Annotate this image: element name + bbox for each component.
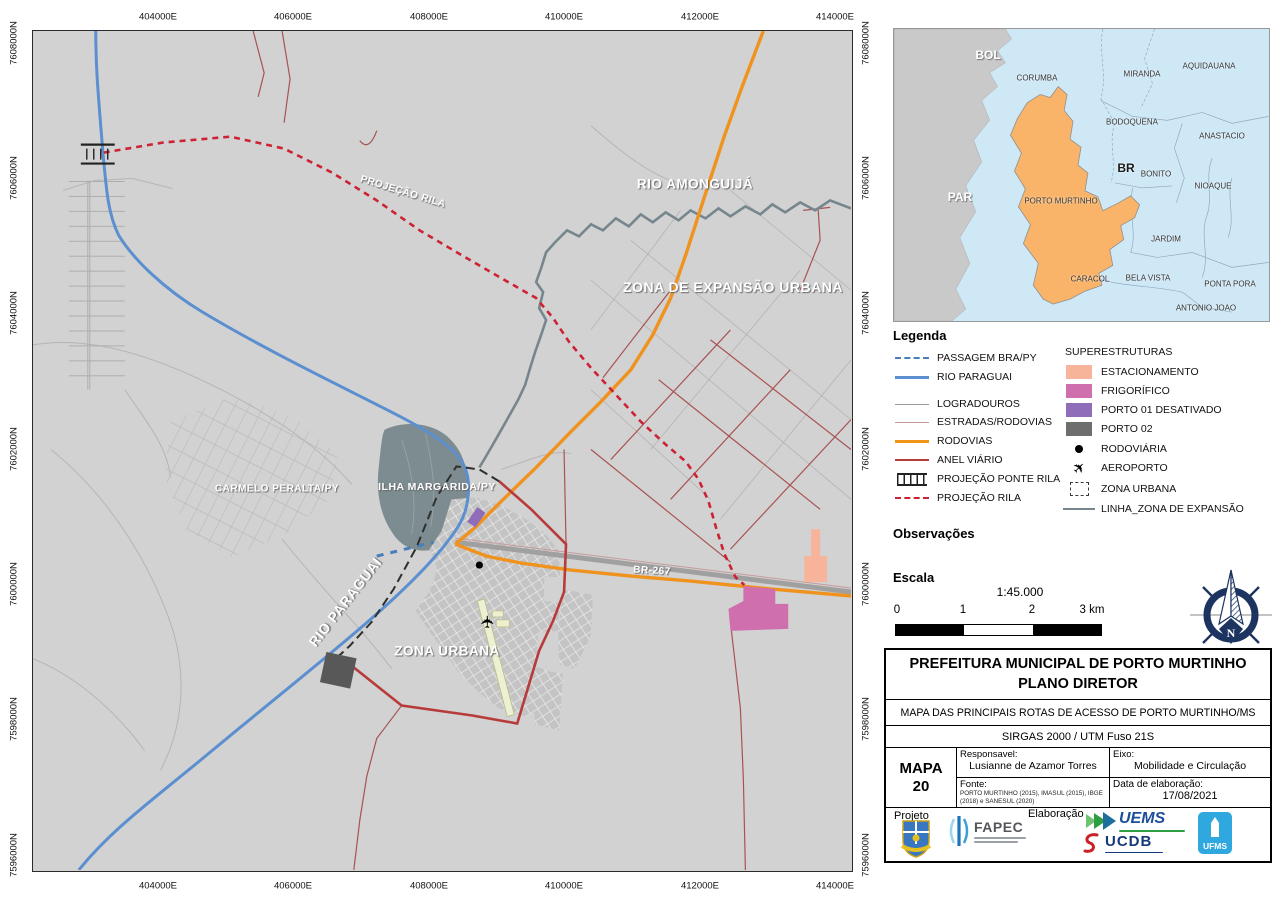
- legend-item-label: ESTRADAS/RODOVIAS: [937, 416, 1052, 428]
- inset-label: BONITO: [1141, 170, 1172, 179]
- line-symbol: [893, 440, 931, 443]
- dashed-line-symbol: [893, 357, 931, 359]
- scale-title: Escala: [893, 570, 934, 585]
- swatch-symbol: [1063, 365, 1095, 379]
- map-canvas: ✈: [33, 31, 851, 870]
- legend-item-label: ESTACIONAMENTO: [1101, 366, 1199, 378]
- legend-item: PASSAGEM BRA/PY: [893, 350, 1068, 366]
- axis-easting-bottom: 408000E: [410, 881, 448, 892]
- legend-item: ANEL VIÁRIO: [893, 452, 1068, 468]
- title-block: PREFEITURA MUNICIPAL DE PORTO MURTINHO P…: [884, 648, 1272, 863]
- line-symbol: [893, 422, 931, 423]
- inset-label: MIRANDA: [1124, 70, 1161, 79]
- uems-logo: UEMS: [1086, 810, 1185, 832]
- legend-item-label: RODOVIAS: [937, 435, 992, 447]
- legend-item-label: PORTO 01 DESATIVADO: [1101, 404, 1222, 416]
- compass-n-letter: N: [1227, 626, 1236, 640]
- legend-item: RODOVIAS: [893, 433, 1068, 449]
- legend-item-label: ANEL VIÁRIO: [937, 454, 1003, 466]
- legend-item-label: AEROPORTO: [1101, 462, 1168, 474]
- inset-label: PORTO MURTINHO: [1024, 197, 1097, 206]
- axis-northing-right: 7596000N: [861, 833, 872, 877]
- map-label: ZONA URBANA: [394, 644, 500, 659]
- axis-easting-bottom: 404000E: [139, 881, 177, 892]
- axis-easting-bottom: 410000E: [545, 881, 583, 892]
- plane-symbol: ✈: [1063, 459, 1095, 477]
- observacoes-title: Observações: [893, 526, 975, 541]
- map-subtitle: MAPA DAS PRINCIPAIS ROTAS DE ACESSO DE P…: [886, 700, 1270, 726]
- legend-item: LOGRADOUROS: [893, 396, 1068, 412]
- axis-northing-left: 7604000N: [9, 291, 20, 335]
- inset-label: BELA VISTA: [1126, 274, 1171, 283]
- inset-label: ANTONIO JOAO: [1176, 304, 1236, 313]
- map-label: CARMELO PERALTA/PY: [215, 484, 339, 495]
- axis-northing-left: 7600000N: [9, 562, 20, 606]
- title-line1: PREFEITURA MUNICIPAL DE PORTO MURTINHO: [886, 655, 1270, 675]
- legend-item: ESTRADAS/RODOVIAS: [893, 414, 1068, 430]
- legend-item: LINHA_ZONA DE EXPANSÃO: [1063, 501, 1273, 517]
- inset-label: JARDIM: [1151, 235, 1181, 244]
- legend-item: ✈AEROPORTO: [1063, 460, 1273, 476]
- responsavel-cell: Responsavel: Lusianne de Azamor Torres: [957, 748, 1109, 778]
- dashed-rect-symbol: [1063, 482, 1095, 496]
- axis-northing-right: 7600000N: [861, 562, 872, 606]
- axis-northing-left: 7598000N: [9, 697, 20, 741]
- axis-easting-top: 412000E: [681, 12, 719, 23]
- dot-symbol: [1063, 445, 1095, 453]
- porto-02: [320, 652, 357, 689]
- legend-item-label: PORTO 02: [1101, 423, 1153, 435]
- scale-tick-label: 2: [1029, 604, 1035, 616]
- legend-superestruturas-title: SUPERESTRUTURAS: [1065, 346, 1172, 358]
- axis-northing-right: 7602000N: [861, 427, 872, 471]
- legend-item-label: RIO PARAGUAI: [937, 371, 1012, 383]
- map-label: RIO AMONGUIJÁ: [637, 177, 753, 192]
- data-cell: Data de elaboração: 17/08/2021: [1110, 778, 1270, 807]
- axis-easting-top: 410000E: [545, 12, 583, 23]
- legend-item: PROJEÇÃO RILA: [893, 490, 1068, 506]
- main-map: ✈: [32, 30, 853, 872]
- swatch-symbol: [1063, 384, 1095, 398]
- axis-easting-bottom: 414000E: [816, 881, 854, 892]
- line-symbol: [893, 404, 931, 405]
- ucdb-icon: [1082, 832, 1102, 854]
- prefeitura-crest: [900, 818, 932, 863]
- legend-item: ZONA URBANA: [1063, 481, 1273, 497]
- ucdb-logo: UCDB: [1082, 832, 1163, 854]
- inset-label: BR: [1117, 161, 1134, 175]
- logos-row: Projeto FAPEC: [886, 808, 1270, 860]
- legend-title: Legenda: [893, 328, 946, 343]
- axis-northing-right: 7606000N: [861, 156, 872, 200]
- legend-item-label: ZONA URBANA: [1101, 483, 1176, 495]
- inset-label: CARACOL: [1071, 275, 1110, 284]
- axis-easting-top: 404000E: [139, 12, 177, 23]
- axis-easting-bottom: 406000E: [274, 881, 312, 892]
- uems-icon: [1086, 812, 1116, 830]
- fapec-icon: [948, 816, 970, 846]
- legend-item: ESTACIONAMENTO: [1063, 364, 1273, 380]
- axis-easting-bottom: 412000E: [681, 881, 719, 892]
- inset-label: PONTA PORA: [1204, 280, 1255, 289]
- swatch-symbol: [1063, 403, 1095, 417]
- line-symbol: [893, 376, 931, 379]
- legend-item: RODOVIÁRIA: [1063, 441, 1273, 457]
- legend-item-label: PROJEÇÃO RILA: [937, 492, 1021, 504]
- scale-tick-label: 3 km: [1080, 604, 1105, 616]
- map-sheet: ✈ Legenda: [0, 0, 1280, 905]
- title-line2: PLANO DIRETOR: [886, 675, 1270, 695]
- axis-easting-top: 406000E: [274, 12, 312, 23]
- city-blocks-south: [531, 669, 563, 731]
- line-symbol: [893, 459, 931, 461]
- inset-label: AQUIDAUANA: [1183, 62, 1236, 71]
- inset-label: NIOAQUE: [1195, 182, 1232, 191]
- inset-label: BODOQUENA: [1106, 118, 1158, 127]
- legend-item-label: PROJEÇÃO PONTE RILA: [937, 473, 1060, 485]
- inset-label: BOL: [975, 48, 1000, 62]
- axis-northing-right: 7608000N: [861, 21, 872, 65]
- map-label: BR-267: [633, 565, 671, 578]
- legend-item-label: LOGRADOUROS: [937, 398, 1020, 410]
- fapec-logo: FAPEC: [948, 816, 1026, 846]
- legend-item: PORTO 01 DESATIVADO: [1063, 402, 1273, 418]
- legend-item: FRIGORÍFICO: [1063, 383, 1273, 399]
- airplane-icon: ✈: [478, 615, 497, 629]
- axis-northing-right: 7604000N: [861, 291, 872, 335]
- ufms-logo: UFMS: [1198, 812, 1232, 854]
- eixo-cell: Eixo: Mobilidade e Circulação: [1110, 748, 1270, 778]
- scale-tick-label: 1: [960, 604, 966, 616]
- rodoviaria-dot: [476, 561, 483, 568]
- legend-item: PROJEÇÃO PONTE RILA: [893, 471, 1068, 487]
- map-label: ILHA MARGARIDA/PY: [378, 481, 496, 493]
- inset-label: ANASTACIO: [1199, 132, 1245, 141]
- bridge-symbol: [893, 473, 931, 486]
- nw-street-grid: [69, 180, 125, 389]
- legend-item-label: FRIGORÍFICO: [1101, 385, 1170, 397]
- line-symbol: [1063, 508, 1095, 510]
- axis-easting-top: 414000E: [816, 12, 854, 23]
- dashed-line-symbol: [893, 497, 931, 499]
- legend-item-label: LINHA_ZONA DE EXPANSÃO: [1101, 503, 1244, 515]
- elaboracao-label: Elaboração: [1028, 808, 1084, 820]
- fonte-cell: Fonte: PORTO MURTINHO (2015), IMASUL (20…: [957, 778, 1109, 807]
- axis-northing-left: 7608000N: [9, 21, 20, 65]
- scale-bar: [895, 624, 1102, 636]
- map-number: MAPA20: [886, 748, 957, 807]
- datum: SIRGAS 2000 / UTM Fuso 21S: [886, 726, 1270, 748]
- legend-item: PORTO 02: [1063, 421, 1273, 437]
- axis-northing-right: 7598000N: [861, 697, 872, 741]
- legend-item: RIO PARAGUAI: [893, 369, 1068, 385]
- scale-ratio: 1:45.000: [997, 585, 1044, 599]
- axis-northing-left: 7596000N: [9, 833, 20, 877]
- scale-tick-label: 0: [894, 604, 900, 616]
- axis-easting-top: 408000E: [410, 12, 448, 23]
- axis-northing-left: 7606000N: [9, 156, 20, 200]
- legend-item-label: PASSAGEM BRA/PY: [937, 352, 1037, 364]
- inset-label: CORUMBA: [1017, 74, 1058, 83]
- axis-northing-left: 7602000N: [9, 427, 20, 471]
- inset-label: PAR: [948, 190, 972, 204]
- map-label: ZONA DE EXPANSÃO URBANA: [623, 279, 843, 295]
- swatch-symbol: [1063, 422, 1095, 436]
- legend-item-label: RODOVIÁRIA: [1101, 443, 1167, 455]
